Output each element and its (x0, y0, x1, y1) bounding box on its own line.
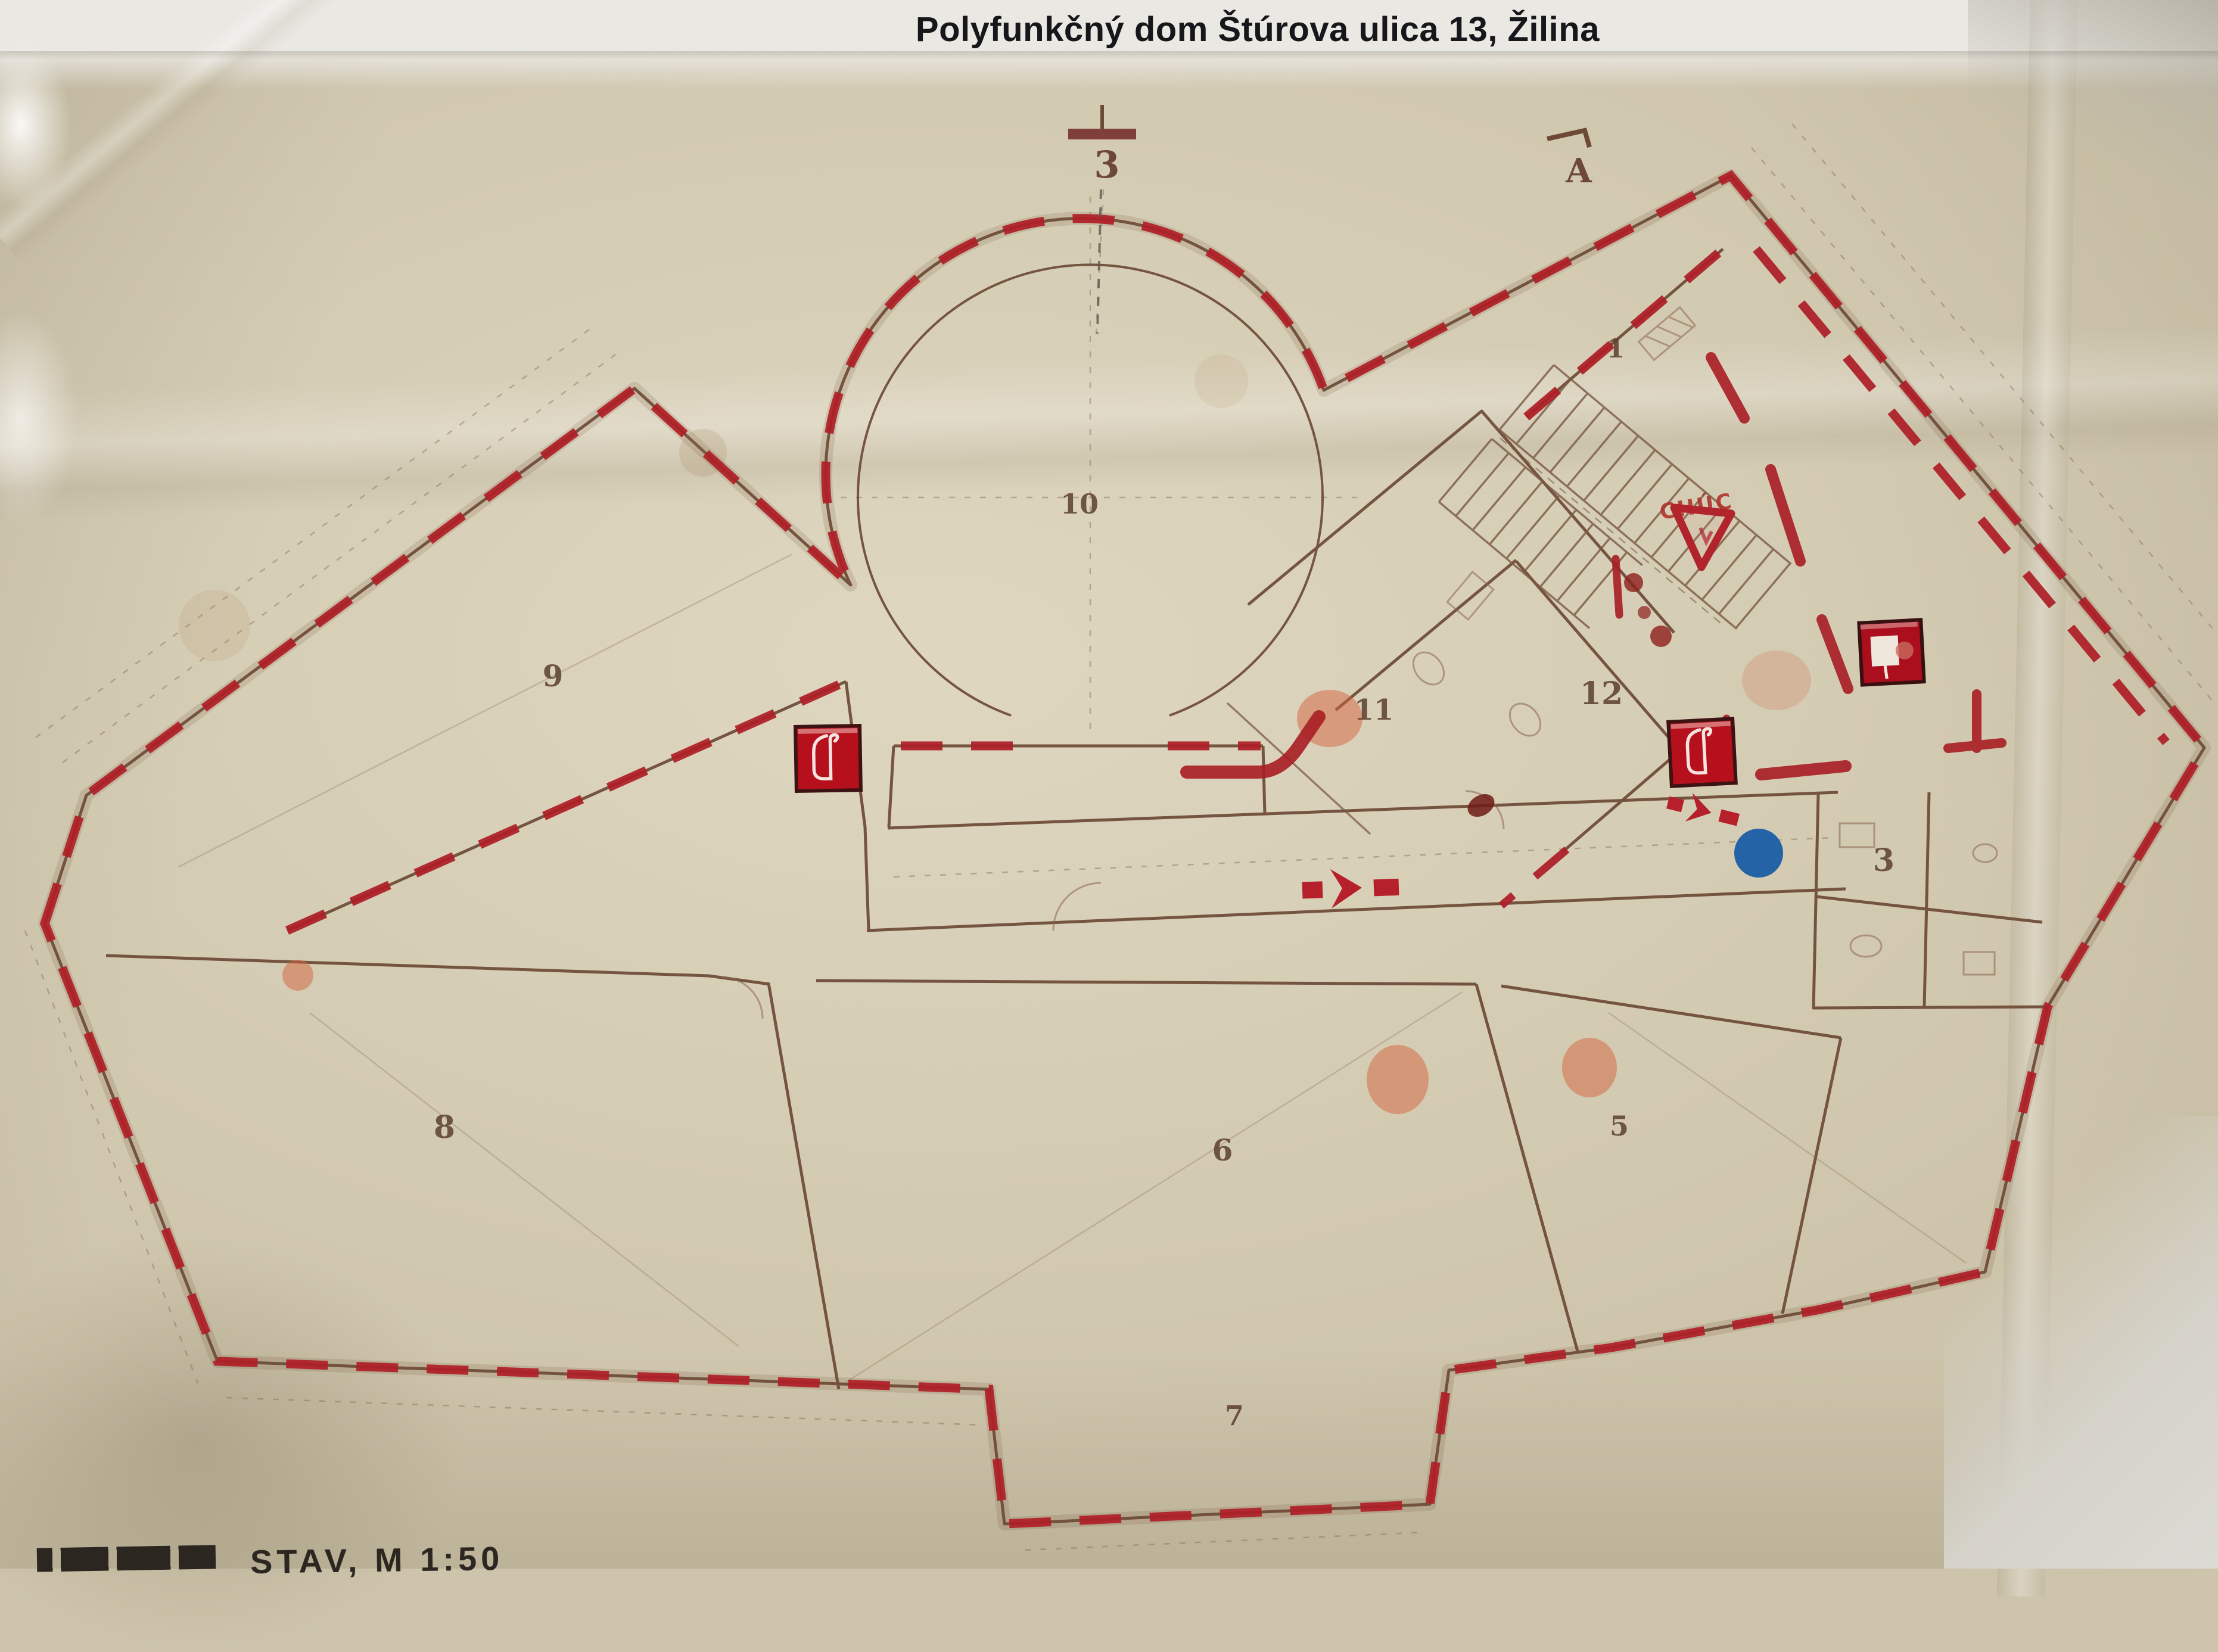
room-label-7: 7 (1225, 1399, 1244, 1432)
direction-arrow-icon (1665, 788, 1742, 833)
room-label-5: 5 (1610, 1110, 1629, 1142)
section-marker-a: A (1547, 130, 1592, 191)
room-label-3: 3 (1873, 842, 1895, 879)
room-label-6: 6 (1212, 1133, 1233, 1168)
caption-clipped-text (37, 1545, 216, 1572)
fire-extinguisher-icon (1668, 718, 1736, 786)
room-label-11: 11 (1354, 693, 1394, 727)
fire-extinguisher-icon (795, 726, 861, 791)
floor-plan-drawing: 3 A CHÚC 1356789101112 (0, 0, 2218, 1569)
section-marker-3-label: 3 (1094, 143, 1119, 186)
room-label-9: 9 (543, 658, 564, 693)
evacuation-triangle-icon (1674, 508, 1731, 567)
room-label-12: 12 (1580, 676, 1623, 712)
room-label-8: 8 (434, 1109, 455, 1146)
fire-hose-reel-icon (1859, 620, 1924, 685)
room-label-1: 1 (1607, 334, 1625, 364)
stains (179, 354, 1811, 1114)
room-label-10: 10 (1060, 488, 1099, 520)
direction-arrow-icon (1302, 867, 1399, 910)
fixtures (721, 307, 1997, 1019)
dimension-lines (25, 124, 2218, 1550)
floor-plan-photo: { "title": "Polyfunkčný dom Štúrova ulic… (0, 0, 2218, 1569)
caption-fragment: STAV, M 1:50 (250, 1539, 504, 1581)
blue-dot-icon (1734, 829, 1783, 878)
section-marker-a-label: A (1565, 151, 1592, 191)
